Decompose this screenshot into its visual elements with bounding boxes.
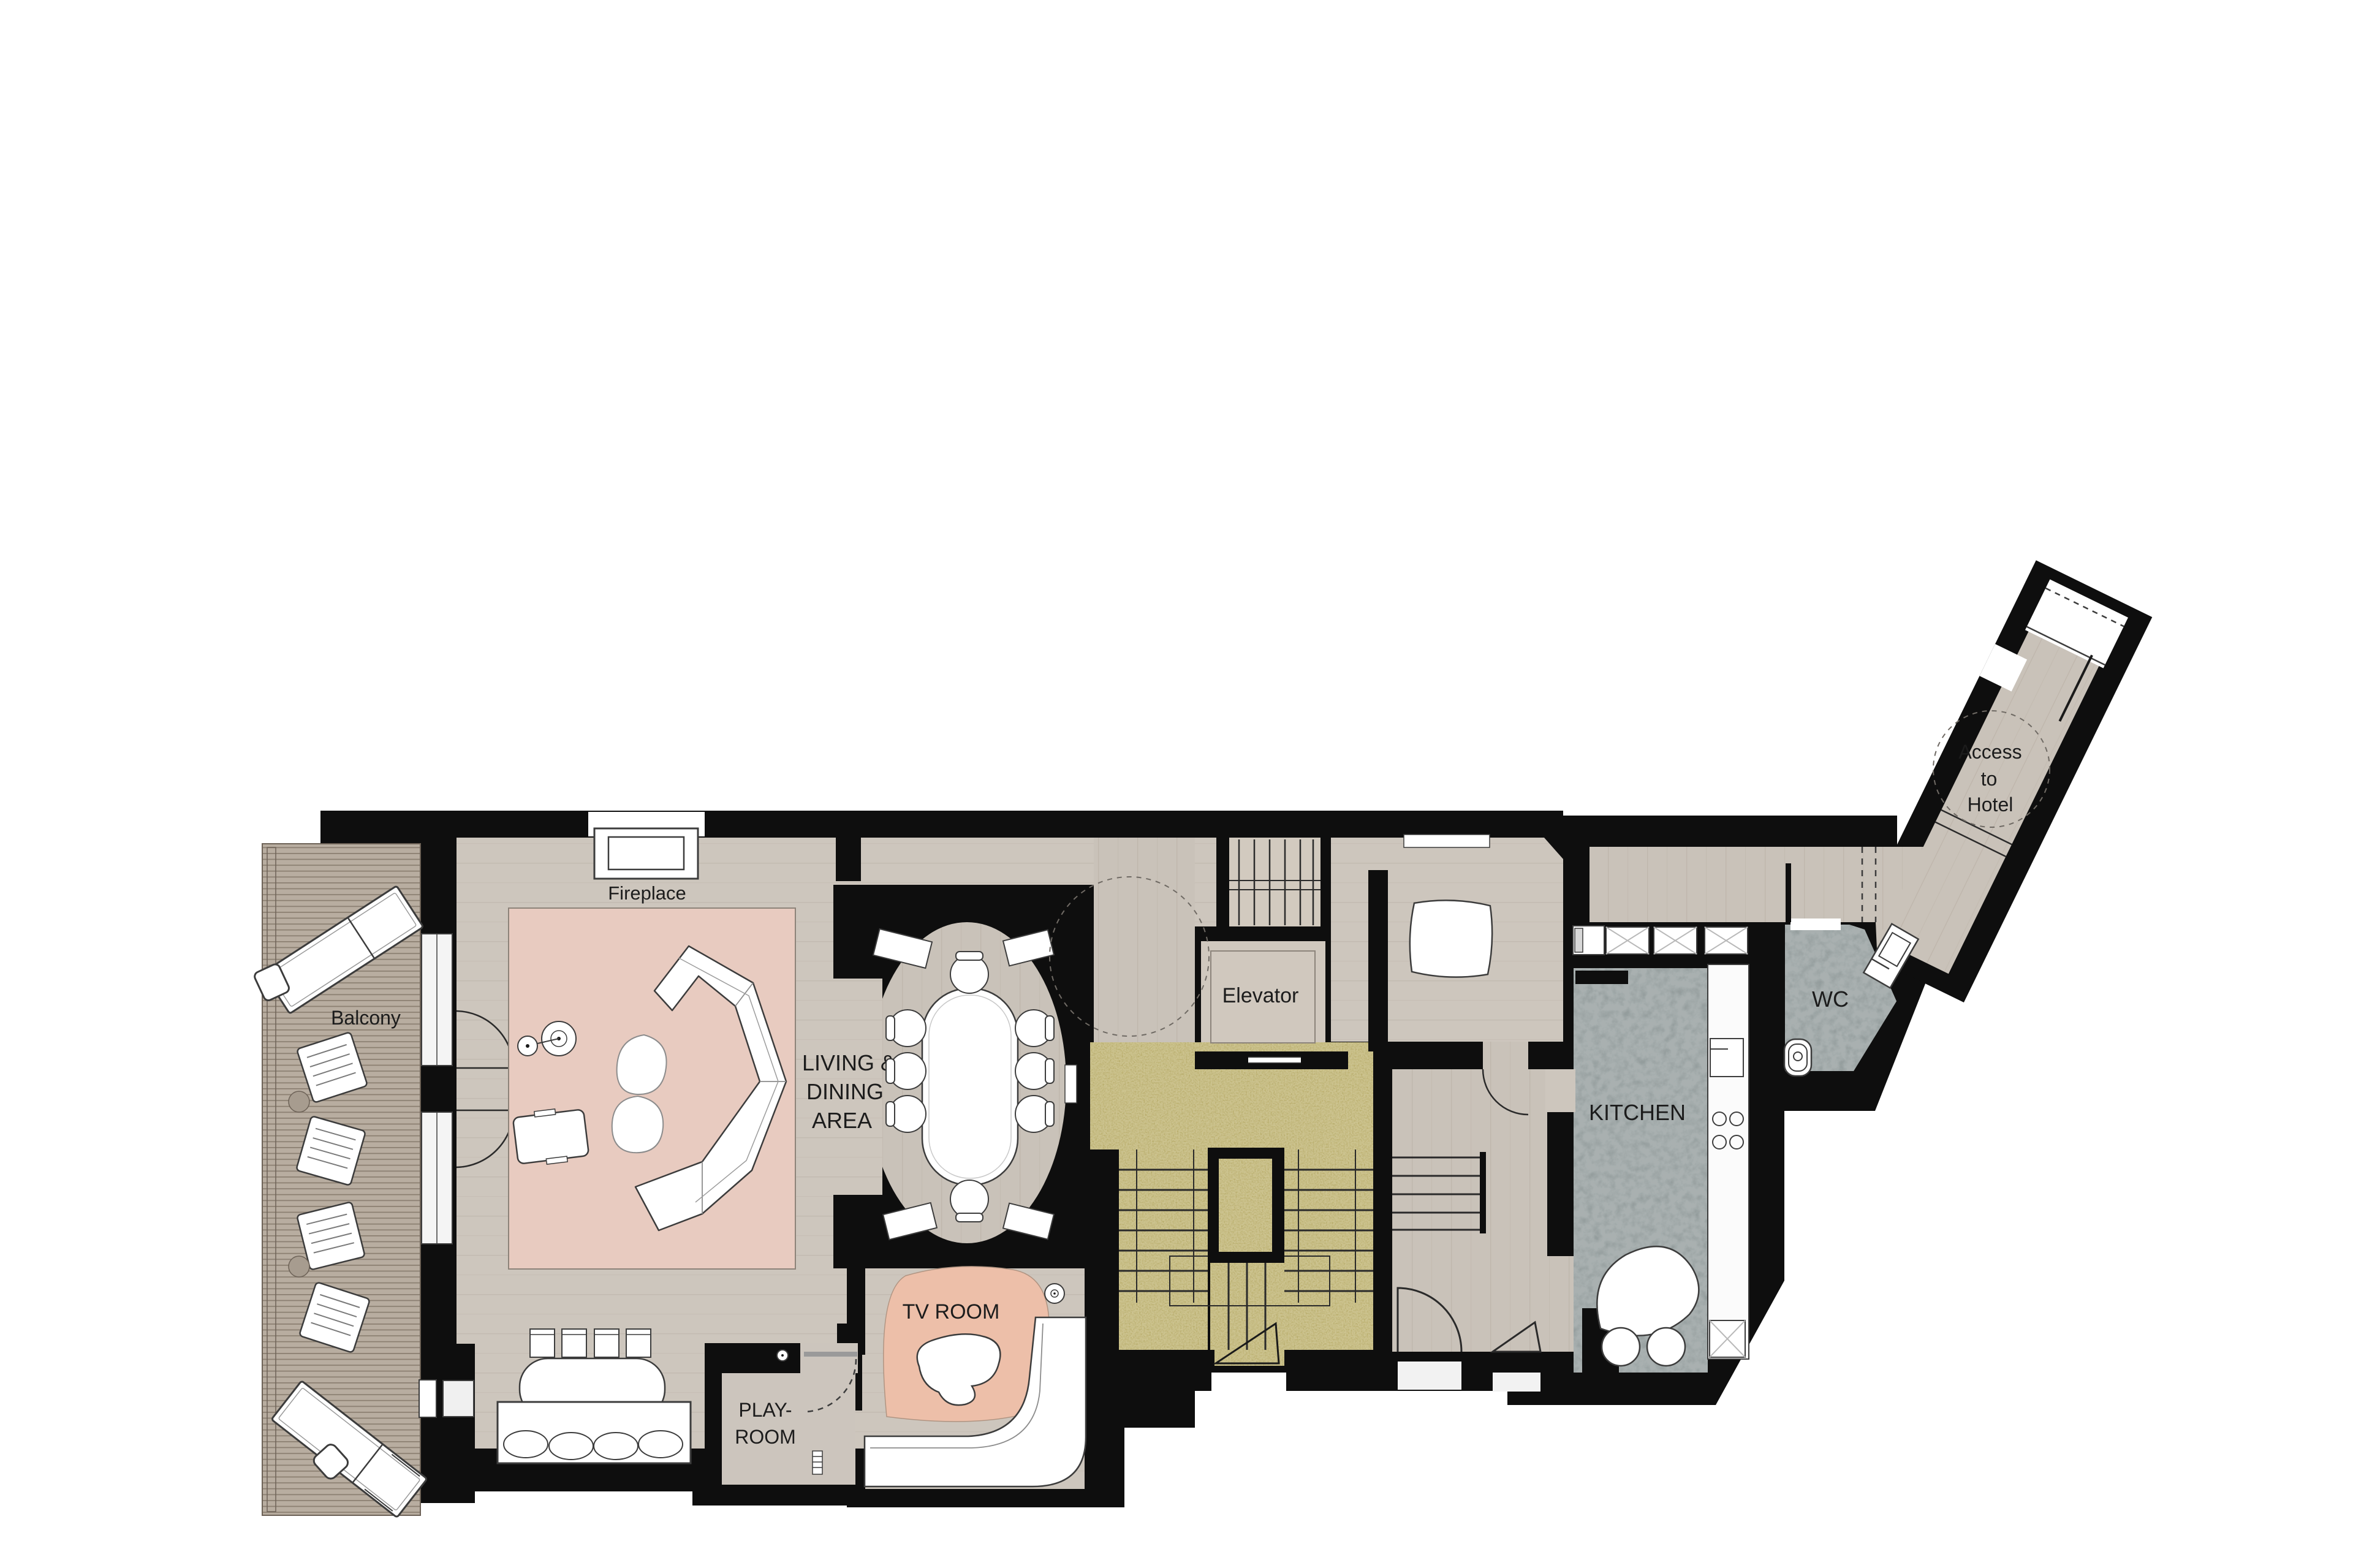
svg-text:LIVING &: LIVING & (802, 1050, 895, 1075)
svg-text:Elevator: Elevator (1222, 984, 1299, 1007)
svg-text:Access: Access (1958, 741, 2021, 763)
svg-text:Fireplace: Fireplace (608, 882, 686, 904)
svg-text:ROOM: ROOM (735, 1426, 796, 1448)
svg-text:WC: WC (1812, 987, 1849, 1012)
svg-text:AREA: AREA (812, 1108, 872, 1133)
svg-text:TV ROOM: TV ROOM (903, 1300, 1000, 1324)
svg-text:to: to (1981, 768, 1998, 790)
svg-text:Hotel: Hotel (1968, 793, 2014, 816)
svg-text:KITCHEN: KITCHEN (1589, 1100, 1686, 1125)
svg-text:DINING: DINING (806, 1079, 884, 1104)
svg-text:PLAY-: PLAY- (738, 1399, 792, 1421)
svg-text:Balcony: Balcony (331, 1007, 401, 1029)
